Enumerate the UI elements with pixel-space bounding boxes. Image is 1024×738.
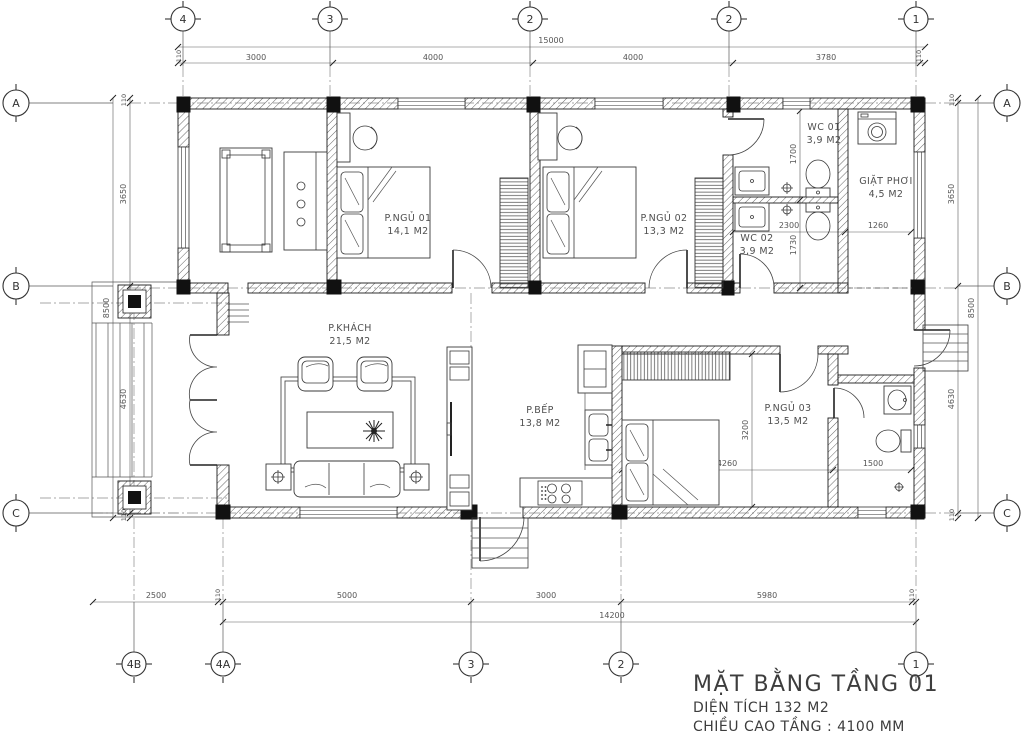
- dim-bed3-width: 4260: [717, 459, 737, 468]
- shower-mixer-wc1: [781, 182, 793, 194]
- room-area-wc1: 3,9 M2: [807, 135, 842, 146]
- grid-bubble-left-b: B: [12, 280, 20, 293]
- dim-laundry-width: 1260: [868, 221, 888, 230]
- wardrobe-2: [695, 178, 723, 288]
- grid-bubble-right-a: A: [1003, 97, 1011, 110]
- dresser: [284, 152, 327, 250]
- chair-1: [353, 126, 377, 150]
- dim-right-total: 8500: [967, 298, 976, 318]
- bedroom2-furniture: [538, 113, 723, 288]
- room-label-laundry: GIẶT PHƠI: [859, 175, 912, 187]
- grid-bubble-top-1: 4: [180, 13, 187, 26]
- bath3-fixtures: [876, 386, 911, 492]
- sink-bath3: [884, 386, 911, 414]
- bedroom1-furniture: [337, 113, 528, 288]
- floor-plan-drawing: 15000 110 3000 4000 4000 3780 110 2500 1…: [0, 0, 1024, 738]
- room-label-bedroom3: P.NGỦ 03: [765, 402, 812, 414]
- desk-1: [337, 113, 350, 162]
- toilet-bath3: [876, 430, 911, 452]
- dim-left-total: 8500: [102, 298, 111, 318]
- dim-right-2: 4630: [947, 389, 956, 409]
- chair-2: [558, 126, 582, 150]
- grid-bubble-top-4: 2: [726, 13, 733, 26]
- armchair-1: [298, 357, 333, 391]
- grid-bubble-bottom-4: 2: [618, 658, 625, 671]
- dim-top-4: 3780: [816, 53, 836, 62]
- grid-bubble-top-3: 2: [527, 13, 534, 26]
- door-back: [480, 517, 524, 561]
- dim-top-0: 110: [175, 50, 183, 62]
- bed-3: [622, 420, 719, 505]
- bed-2: [543, 167, 636, 258]
- room-area-bedroom3: 13,5 M2: [767, 416, 808, 427]
- drawing-title: MẶT BẰNG TẦNG 01: [693, 668, 939, 697]
- dim-bottom-0: 2500: [146, 591, 166, 600]
- room-area-living: 21,5 M2: [329, 336, 370, 347]
- dim-bottom-1: 110: [214, 589, 222, 601]
- toilet-wc1: [806, 160, 830, 188]
- floor-drain: [894, 482, 904, 492]
- side-table-2: [404, 464, 429, 490]
- door-bath3: [834, 388, 864, 418]
- door-bedroom2: [649, 250, 687, 288]
- grid-bubble-top-2: 3: [327, 13, 334, 26]
- window-living: [300, 507, 397, 518]
- room-label-kitchen: P.BẾP: [526, 404, 554, 416]
- grid-bubble-bottom-3: 3: [468, 658, 475, 671]
- dim-wc-lower: 1730: [789, 235, 798, 255]
- room-area-bedroom1: 14,1 M2: [387, 226, 428, 237]
- window-bedroom2: [595, 98, 663, 109]
- window-wc1: [783, 98, 810, 109]
- dim-top-1: 3000: [246, 53, 266, 62]
- grid-bubble-bottom-1: 4B: [127, 658, 142, 671]
- door-main-folding: [189, 335, 217, 465]
- desk-2: [538, 113, 557, 160]
- dim-top-2: 4000: [423, 53, 443, 62]
- dim-right-0: 110: [948, 94, 956, 106]
- dim-bottom-3: 3000: [536, 591, 556, 600]
- drawing-floor-height: CHIỀU CAO TẦNG : 4100 MM: [693, 716, 905, 735]
- dim-left-1: 3650: [119, 184, 128, 204]
- window-bath3-east: [914, 425, 925, 448]
- kitchen-sink: [585, 410, 612, 465]
- grid-bubble-left-a: A: [12, 97, 20, 110]
- sofa: [294, 461, 400, 497]
- plant-icon: [363, 420, 385, 442]
- grid-bubble-left-c: C: [12, 507, 20, 520]
- grid-bubble-bottom-5: 1: [913, 658, 920, 671]
- dim-top-3: 4000: [623, 53, 643, 62]
- door-side-stairs: [914, 330, 950, 366]
- dim-bottom-5: 110: [908, 589, 916, 601]
- dim-bottom-4: 5980: [757, 591, 777, 600]
- side-table-1: [266, 464, 291, 490]
- room-label-living: P.KHÁCH: [328, 322, 372, 334]
- dim-left-0: 110: [120, 94, 128, 106]
- wardrobe-3: [622, 352, 730, 380]
- dim-wc-upper: 1700: [789, 144, 798, 164]
- tv-cabinet: [447, 347, 472, 510]
- wc1-fixtures: [735, 160, 830, 197]
- door-bedroom1: [453, 250, 491, 288]
- floor-plan-page: 15000 110 3000 4000 4000 3780 110 2500 1…: [0, 0, 1024, 738]
- bedroom3-furniture: [622, 352, 730, 505]
- window-laundry: [914, 152, 925, 238]
- grid-bubble-top-5: 1: [913, 13, 920, 26]
- coffee-table: [307, 412, 393, 448]
- dim-bottom-2: 5000: [337, 591, 357, 600]
- room-area-laundry: 4,5 M2: [869, 189, 904, 200]
- dim-wc-width: 2300: [779, 221, 799, 230]
- door-wc1: [728, 119, 764, 155]
- altar-room-furniture: [220, 148, 327, 252]
- dim-right-3: 110: [948, 509, 956, 521]
- dim-right-1: 3650: [947, 184, 956, 204]
- window-bedroom1: [398, 98, 465, 109]
- armchair-2: [357, 357, 392, 391]
- grid-bubble-bottom-2: 4A: [216, 658, 231, 671]
- grid-bubble-right-c: C: [1003, 507, 1011, 520]
- washing-machine-icon: [858, 112, 896, 144]
- room-area-kitchen: 13,8 M2: [519, 418, 560, 429]
- window-bath3-south: [858, 507, 886, 518]
- fridge: [578, 345, 612, 393]
- dim-bath3-width: 1500: [863, 459, 883, 468]
- grid-bubble-right-b: B: [1003, 280, 1011, 293]
- wardrobe-1: [500, 178, 528, 288]
- room-label-bedroom2: P.NGỦ 02: [641, 212, 688, 224]
- window-altar-room: [178, 147, 189, 248]
- door-bedroom3: [780, 354, 818, 392]
- shower-mixer-wc2: [781, 204, 793, 216]
- dim-bed3-height: 3200: [741, 420, 750, 440]
- dim-top-total: 15000: [538, 36, 563, 45]
- living-room-furniture: [266, 347, 472, 510]
- room-label-bedroom1: P.NGỦ 01: [385, 212, 432, 224]
- room-area-wc2: 3,9 M2: [740, 246, 775, 257]
- drawing-area: DIỆN TÍCH 132 M2: [693, 698, 829, 716]
- title-block: MẶT BẰNG TẦNG 01 DIỆN TÍCH 132 M2 CHIỀU …: [693, 668, 939, 735]
- room-label-wc1: WC 01: [807, 122, 840, 133]
- room-label-wc2: WC 02: [740, 233, 773, 244]
- door-wc2: [740, 254, 774, 288]
- laundry-fixtures: [858, 112, 896, 144]
- room-area-bedroom2: 13,3 M2: [643, 226, 684, 237]
- toilet-wc2: [806, 203, 830, 212]
